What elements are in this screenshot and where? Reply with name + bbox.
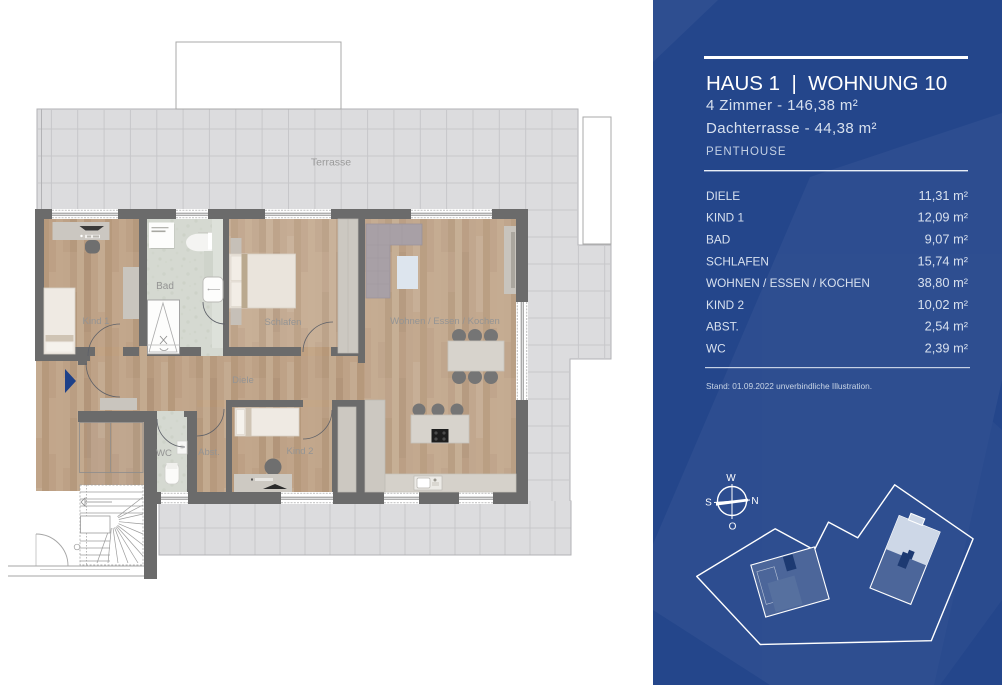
svg-text:BAD: BAD [706,233,730,247]
svg-text:Schlafen: Schlafen [265,317,302,328]
svg-text:SCHLAFEN: SCHLAFEN [706,254,769,268]
svg-text:Diele: Diele [232,375,254,386]
svg-text:4 Zimmer - 146,38 m²: 4 Zimmer - 146,38 m² [706,97,858,114]
svg-text:Bad: Bad [156,281,174,292]
svg-text:Abst.: Abst. [198,447,220,458]
svg-text:HAUS 1 | WOHNUNG 10: HAUS 1 | WOHNUNG 10 [706,72,947,95]
svg-text:WOHNEN / ESSEN / KOCHEN: WOHNEN / ESSEN / KOCHEN [706,276,870,290]
svg-text:15,74 m²: 15,74 m² [917,253,968,268]
svg-text:KIND 1: KIND 1 [706,211,744,225]
svg-text:Wohnen / Essen / Kochen: Wohnen / Essen / Kochen [390,316,500,327]
svg-text:W: W [726,473,736,484]
svg-text:2,39 m²: 2,39 m² [925,341,969,356]
svg-text:10,02 m²: 10,02 m² [917,297,968,312]
svg-text:WC: WC [706,342,726,356]
svg-text:Stand: 01.09.2022 unverbindlic: Stand: 01.09.2022 unverbindliche Illustr… [706,381,872,391]
svg-text:9,07 m²: 9,07 m² [925,232,969,247]
svg-text:WC: WC [156,448,172,459]
svg-text:38,80 m²: 38,80 m² [917,275,968,290]
svg-text:N: N [751,496,758,507]
svg-text:DIELE: DIELE [706,189,740,203]
svg-text:12,09 m²: 12,09 m² [917,210,968,225]
svg-text:Dachterrasse - 44,38 m²: Dachterrasse - 44,38 m² [706,120,877,137]
svg-text:2,54 m²: 2,54 m² [925,319,969,334]
svg-text:O: O [729,522,737,533]
svg-text:Kind 1: Kind 1 [83,316,110,327]
svg-text:S: S [705,498,712,509]
svg-text:PENTHOUSE: PENTHOUSE [706,146,787,158]
svg-text:11,31 m²: 11,31 m² [918,188,968,203]
svg-text:KIND 2: KIND 2 [706,298,744,312]
svg-text:Terrasse: Terrasse [311,157,351,169]
svg-text:Kind 2: Kind 2 [287,446,314,457]
svg-text:ABST.: ABST. [706,320,739,334]
